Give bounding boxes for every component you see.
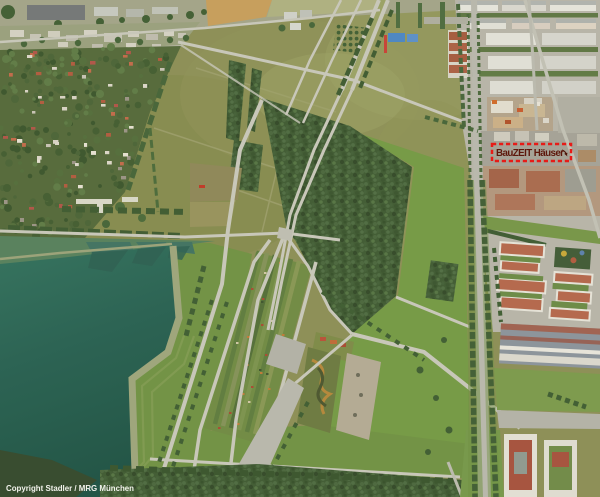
- svg-text:Copyright Stadler / MRG Münche: Copyright Stadler / MRG München: [6, 484, 134, 493]
